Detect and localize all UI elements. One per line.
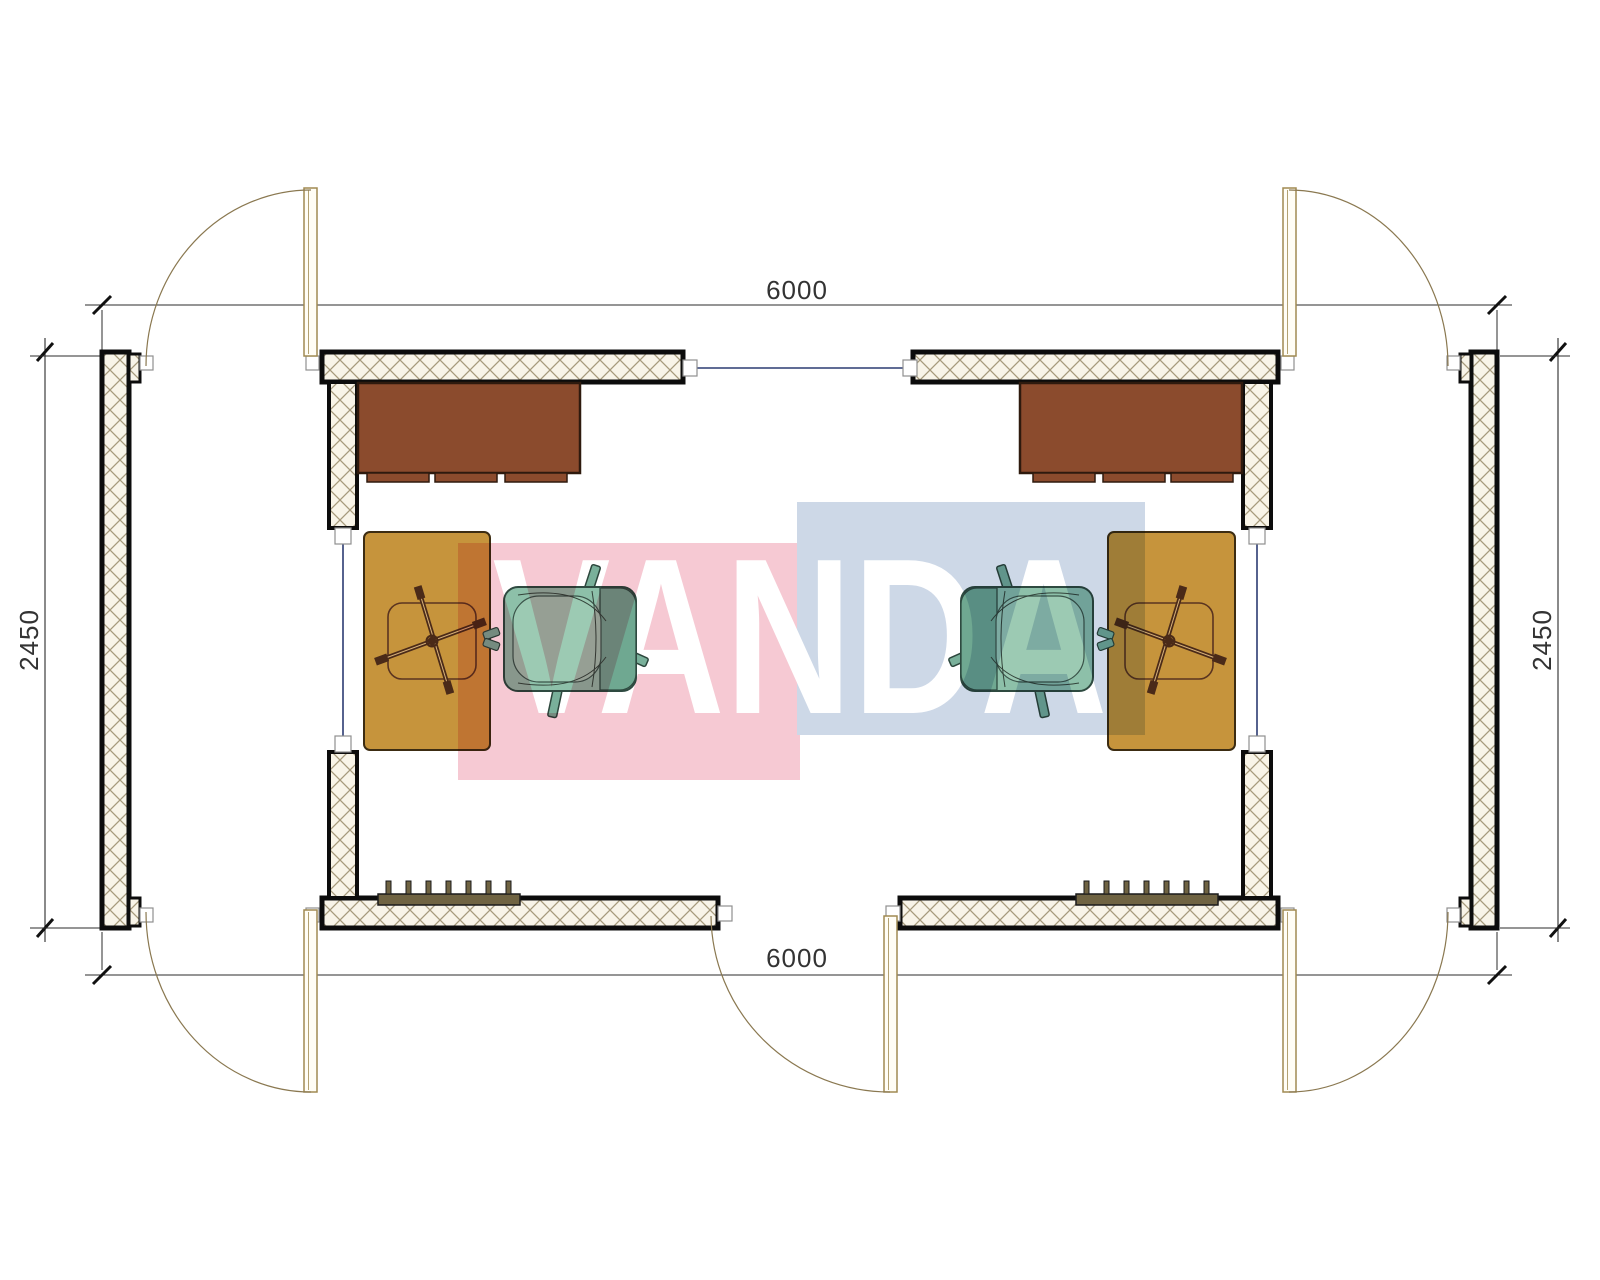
door-bottom-right	[1283, 910, 1448, 1092]
door-leaf	[1283, 910, 1296, 1092]
joint-connector	[903, 360, 917, 376]
door-leaf	[304, 910, 317, 1092]
module2-top-wall-leg	[1243, 382, 1271, 528]
joint-connector	[335, 528, 351, 544]
door-swing-arc	[1289, 190, 1448, 366]
wall-stub	[129, 898, 140, 926]
plan-layer: 6000 6000 2450 2450	[0, 0, 1600, 1280]
dimension-bottom: 6000	[85, 932, 1512, 984]
module1-wardrobe	[358, 383, 580, 482]
floor-plan-canvas: VANDA	[0, 0, 1600, 1280]
door-bottom-left	[146, 910, 317, 1092]
dimension-left-value: 2450	[14, 609, 44, 671]
door-top-left	[146, 188, 317, 366]
dimension-right-value: 2450	[1527, 609, 1557, 671]
door-jamb	[1447, 356, 1460, 370]
dimension-left: 2450	[14, 338, 100, 942]
joint-connector	[1249, 736, 1265, 752]
dimension-bottom-value: 6000	[766, 943, 828, 973]
door-jamb	[1447, 908, 1460, 922]
door-leaf	[884, 916, 897, 1092]
door-swing-arc	[1289, 912, 1448, 1092]
door-leaf	[304, 188, 317, 356]
door-jamb	[718, 906, 732, 921]
door-jamb	[306, 356, 319, 370]
joint-connector	[1249, 528, 1265, 544]
joint-connector	[683, 360, 697, 376]
wall-stub	[1460, 898, 1471, 926]
dimension-top: 6000	[85, 275, 1512, 350]
module2-top-wall	[913, 352, 1278, 382]
dimension-right: 2450	[1500, 338, 1570, 942]
module2-bottom-wall-leg	[1243, 752, 1271, 898]
left-exterior-wall	[102, 352, 129, 928]
door-leaf	[1283, 188, 1296, 356]
dimension-top-value: 6000	[766, 275, 828, 305]
door-top-right	[1283, 188, 1448, 366]
module2-wardrobe	[1020, 383, 1242, 482]
door-jamb	[1281, 356, 1294, 370]
walls	[102, 352, 1497, 928]
wall-stub	[1460, 354, 1471, 382]
module1-bottom-wall-leg	[329, 752, 357, 898]
right-exterior-wall	[1471, 352, 1497, 928]
module1-top-wall	[322, 352, 683, 382]
joint-connector	[335, 736, 351, 752]
module1-top-wall-leg	[329, 382, 357, 528]
door-swing-arc	[146, 190, 311, 366]
door-swing-arc	[146, 912, 311, 1092]
wall-stub	[129, 354, 140, 382]
